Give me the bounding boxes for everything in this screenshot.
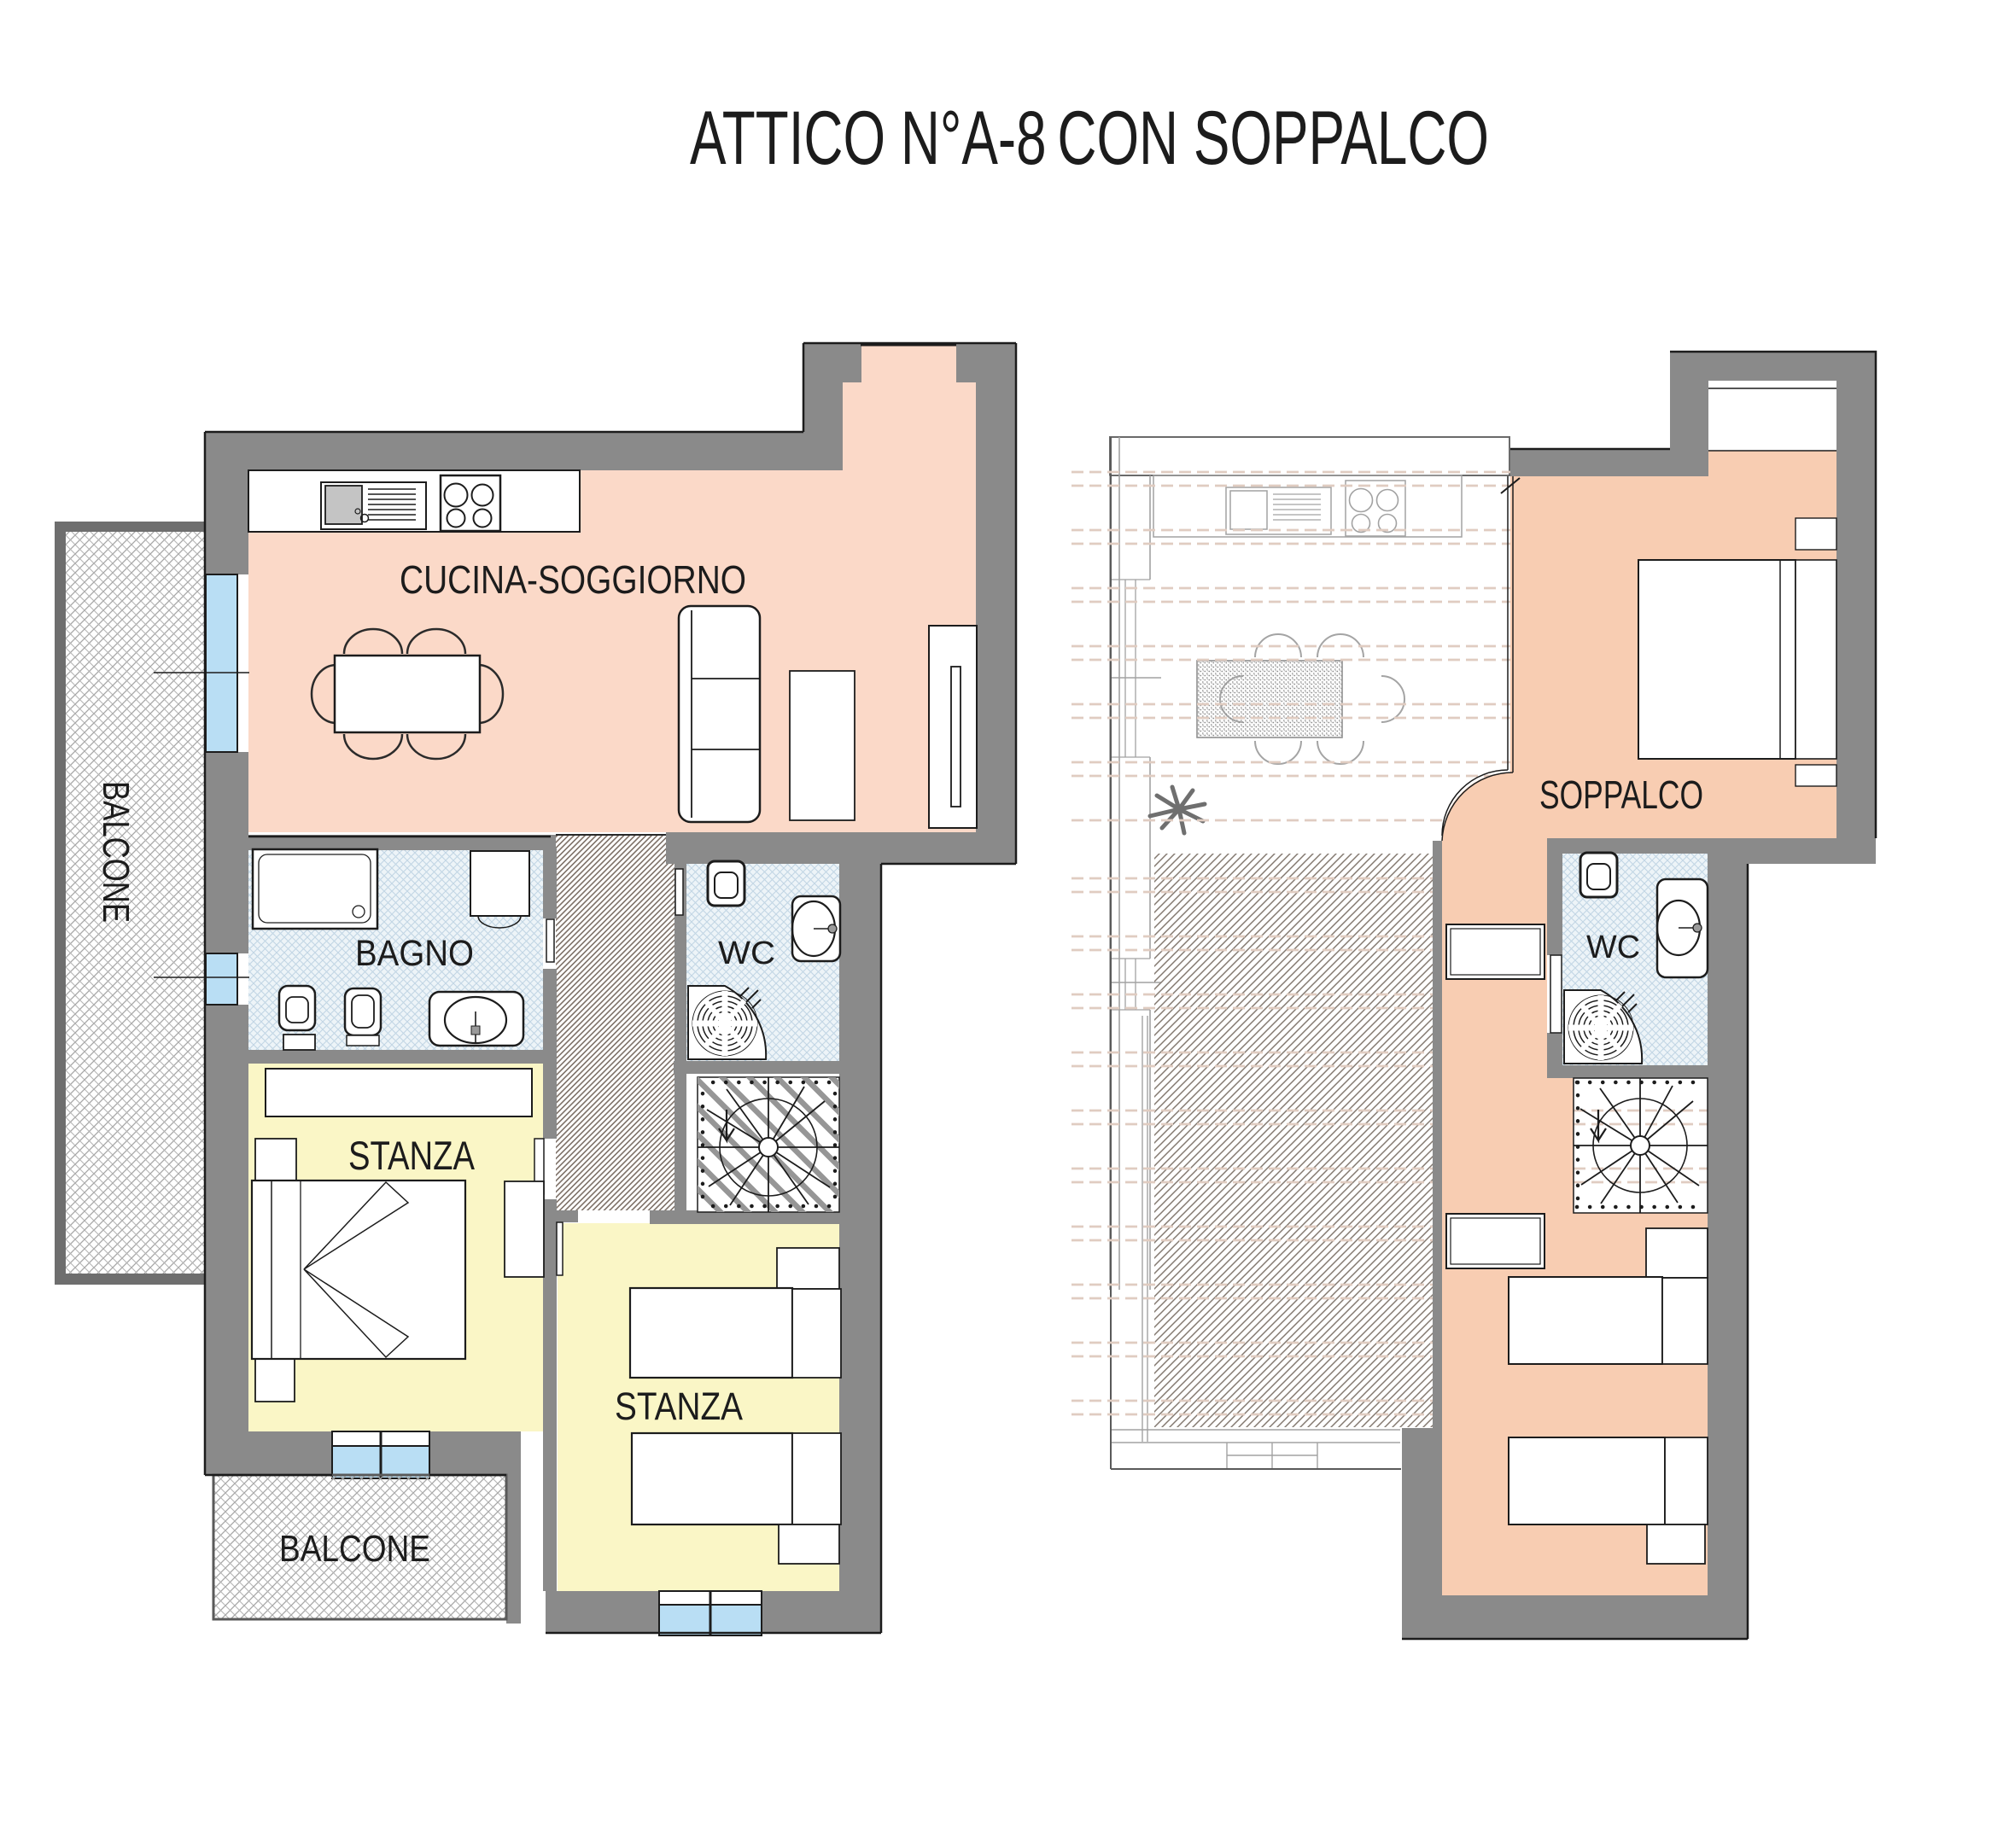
svg-text:BAGNO: BAGNO [355, 933, 474, 974]
svg-text:BALCONE: BALCONE [95, 781, 137, 923]
svg-text:WC: WC [718, 936, 775, 971]
svg-text:STANZA: STANZA [348, 1133, 476, 1178]
svg-text:SOPPALCO: SOPPALCO [1539, 772, 1703, 817]
svg-text:ATTICO N°A-8 CON SOPPALCO: ATTICO N°A-8 CON SOPPALCO [690, 95, 1489, 180]
svg-text:WC: WC [1586, 930, 1640, 965]
svg-text:BALCONE: BALCONE [279, 1528, 430, 1570]
svg-text:CUCINA-SOGGIORNO: CUCINA-SOGGIORNO [400, 557, 746, 602]
svg-text:STANZA: STANZA [615, 1385, 743, 1428]
